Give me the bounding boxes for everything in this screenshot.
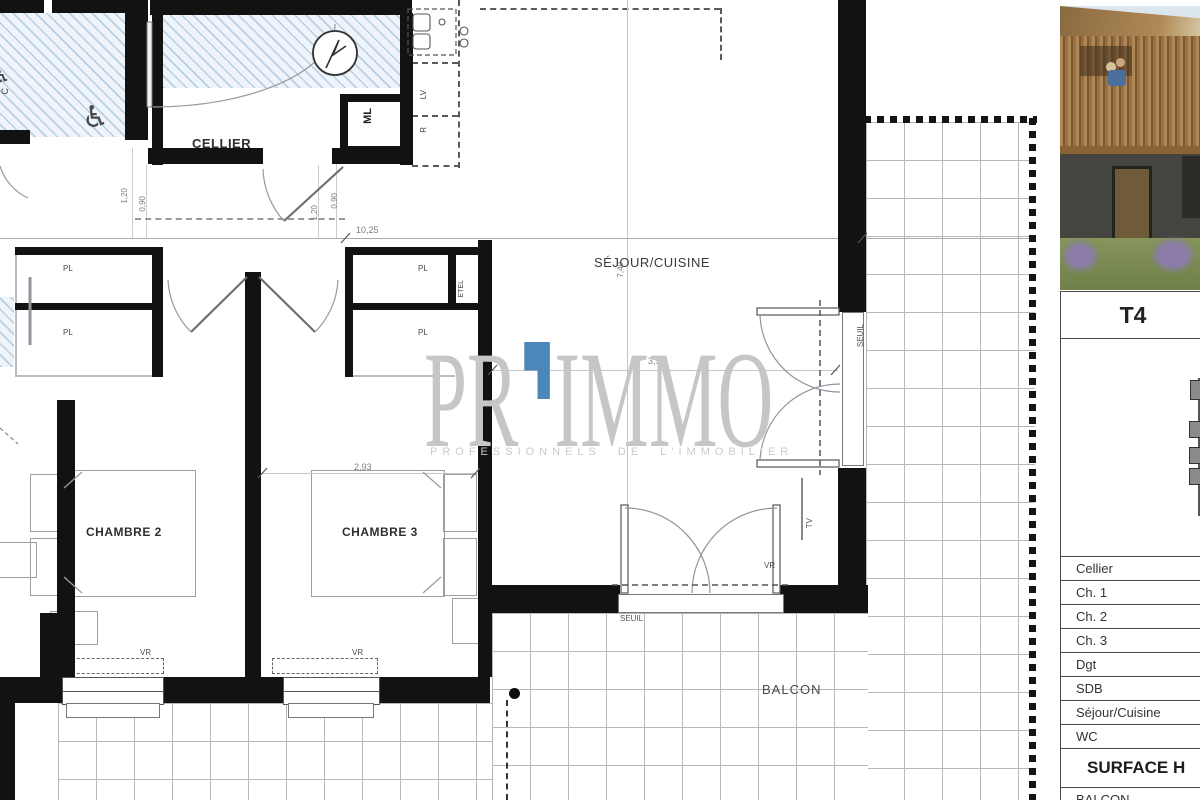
dim-0-90: 0,90 <box>330 193 339 209</box>
balcony-dashed-edge <box>506 700 508 800</box>
closet-wall <box>15 303 152 310</box>
balcon-label: BALCON <box>1076 792 1129 800</box>
closet-line <box>15 375 152 377</box>
desk <box>452 598 480 644</box>
dimension-line <box>318 165 319 238</box>
wheelchair-icon: ♿ <box>82 100 109 135</box>
table-cell: Dgt <box>1076 657 1096 672</box>
r-fridge-label: R <box>419 127 428 133</box>
wall <box>838 0 866 312</box>
table-cell: Ch. 3 <box>1076 633 1107 648</box>
etel-label: ETEL <box>458 280 465 298</box>
wall <box>478 585 620 613</box>
edge-hatched-sliver <box>0 297 14 367</box>
photo-lavender <box>1154 240 1192 270</box>
table-row: SDB <box>1061 677 1200 701</box>
wall <box>57 400 75 677</box>
wall <box>378 677 490 703</box>
vr-label: VR <box>140 648 151 657</box>
kitchen-counter-dashed <box>720 8 722 60</box>
pl-label: PL <box>63 328 73 337</box>
closet-wall <box>345 247 480 255</box>
closet-wall <box>345 303 480 310</box>
wall <box>125 0 148 140</box>
window-chambre3 <box>283 677 380 705</box>
surface-label: SURFACE H <box>1087 758 1185 778</box>
balcony-tiles-right <box>492 613 868 800</box>
pl-label: PL <box>418 264 428 273</box>
photo-door <box>1112 166 1152 246</box>
table-cell: Ch. 2 <box>1076 609 1107 624</box>
kitchen-counter-dashed <box>480 8 720 10</box>
building-footprint-icon <box>1190 380 1200 400</box>
dim-0-90: 0,90 <box>138 196 147 212</box>
window-chambre2 <box>62 677 164 705</box>
watermark-tagline: PROFESSIONNELS DE L'IMMOBILIER <box>430 446 793 458</box>
building-footprint-icon <box>1189 447 1200 464</box>
floorplan-page: ML LV R VR VR VR SEUIL SEUIL <box>0 0 1200 800</box>
unit-type-box: T4 <box>1060 291 1200 339</box>
wall <box>162 677 283 703</box>
pl-label: PL <box>63 264 73 273</box>
table-row-balcon: BALCON <box>1061 788 1200 800</box>
table-row: Ch. 2 <box>1061 605 1200 629</box>
kitchen-counter-dashed <box>412 62 458 64</box>
wc-partial-label: C <box>0 88 10 95</box>
photo-person-body <box>1108 70 1126 86</box>
room-label-chambre3: CHAMBRE 3 <box>342 525 418 539</box>
tv-wall-line <box>801 478 803 540</box>
room-label-cellier: CELLIER <box>192 136 251 151</box>
dim-2-93: 2,93 <box>354 462 372 472</box>
photo-window <box>1182 156 1200 218</box>
balcony-post <box>509 688 520 699</box>
wall <box>0 0 44 13</box>
kitchen-counter-dashed <box>458 0 460 168</box>
building-photo <box>1060 6 1200 290</box>
photo-person <box>1116 58 1125 67</box>
vr-label: VR <box>352 648 363 657</box>
window-sill <box>288 703 374 718</box>
closet-line <box>15 247 17 375</box>
closet-wall <box>345 247 353 377</box>
dimension-chain-line <box>0 238 1035 239</box>
table-cell: SDB <box>1076 681 1103 696</box>
building-footprint-icon <box>1189 421 1200 438</box>
terrace-tiles <box>866 122 1035 800</box>
ml-label: ML <box>362 108 374 124</box>
kitchen-counter-dashed <box>412 165 460 167</box>
table-cell: WC <box>1076 729 1098 744</box>
room-label-sejour: SÉJOUR/CUISINE <box>594 255 710 270</box>
balcony-threshold <box>618 594 784 613</box>
wall <box>780 585 868 613</box>
photo-lavender <box>1064 242 1096 270</box>
wall <box>150 0 412 15</box>
nightstand <box>443 474 477 532</box>
wall <box>245 272 261 677</box>
vr-shutter-box <box>272 658 378 674</box>
locator-box <box>1060 339 1200 556</box>
room-table: Cellier Ch. 1 Ch. 2 Ch. 3 Dgt SDB Séjour… <box>1060 556 1200 800</box>
table-row: WC <box>1061 725 1200 749</box>
table-row: Séjour/Cuisine <box>1061 701 1200 725</box>
closet-wall <box>448 255 456 309</box>
seuil-label: SEUIL <box>620 614 643 623</box>
wall <box>152 15 163 165</box>
vr-label: VR <box>764 561 775 570</box>
table-row: Dgt <box>1061 653 1200 677</box>
room-label-balcon: BALCON <box>762 682 821 697</box>
ml-closet <box>340 94 408 154</box>
terrace-dotted-border-right <box>1029 118 1036 800</box>
dim-1-20: 1,20 <box>310 205 319 221</box>
building-footprint-icon <box>1189 468 1200 485</box>
window-sill <box>66 703 160 718</box>
tv-label: TV <box>805 518 814 528</box>
dimension-line <box>627 0 628 612</box>
unit-type-label: T4 <box>1120 302 1147 329</box>
table-row-surface: SURFACE H <box>1061 749 1200 788</box>
table-cell: Ch. 1 <box>1076 585 1107 600</box>
dimension-line <box>132 148 133 238</box>
lv-dishwasher-label: LV <box>419 90 428 99</box>
table-cell: Cellier <box>1076 561 1113 576</box>
apostrophe-mark-icon <box>524 342 550 399</box>
dim-10-25: 10,25 <box>356 225 379 235</box>
terrace-dotted-border-top <box>864 116 1037 123</box>
wall <box>52 0 134 13</box>
room-label-chambre2: CHAMBRE 2 <box>86 525 162 539</box>
table-cell: Séjour/Cuisine <box>1076 705 1161 720</box>
table-row: Ch. 1 <box>1061 581 1200 605</box>
kitchen-counter-dashed <box>412 115 458 117</box>
furniture <box>0 542 37 578</box>
closet-wall <box>152 247 163 377</box>
table-row: Ch. 3 <box>1061 629 1200 653</box>
nightstand <box>443 538 477 596</box>
closet-wall <box>15 247 163 255</box>
wheelchair-icon: ♿ <box>0 60 11 90</box>
seuil-label: SEUIL <box>856 324 865 347</box>
table-row: Cellier <box>1061 557 1200 581</box>
wall <box>0 685 15 800</box>
entry-hatched-floor <box>163 15 410 88</box>
dim-1-20: 1,20 <box>120 188 129 204</box>
wall <box>0 130 30 144</box>
wall <box>40 613 58 693</box>
